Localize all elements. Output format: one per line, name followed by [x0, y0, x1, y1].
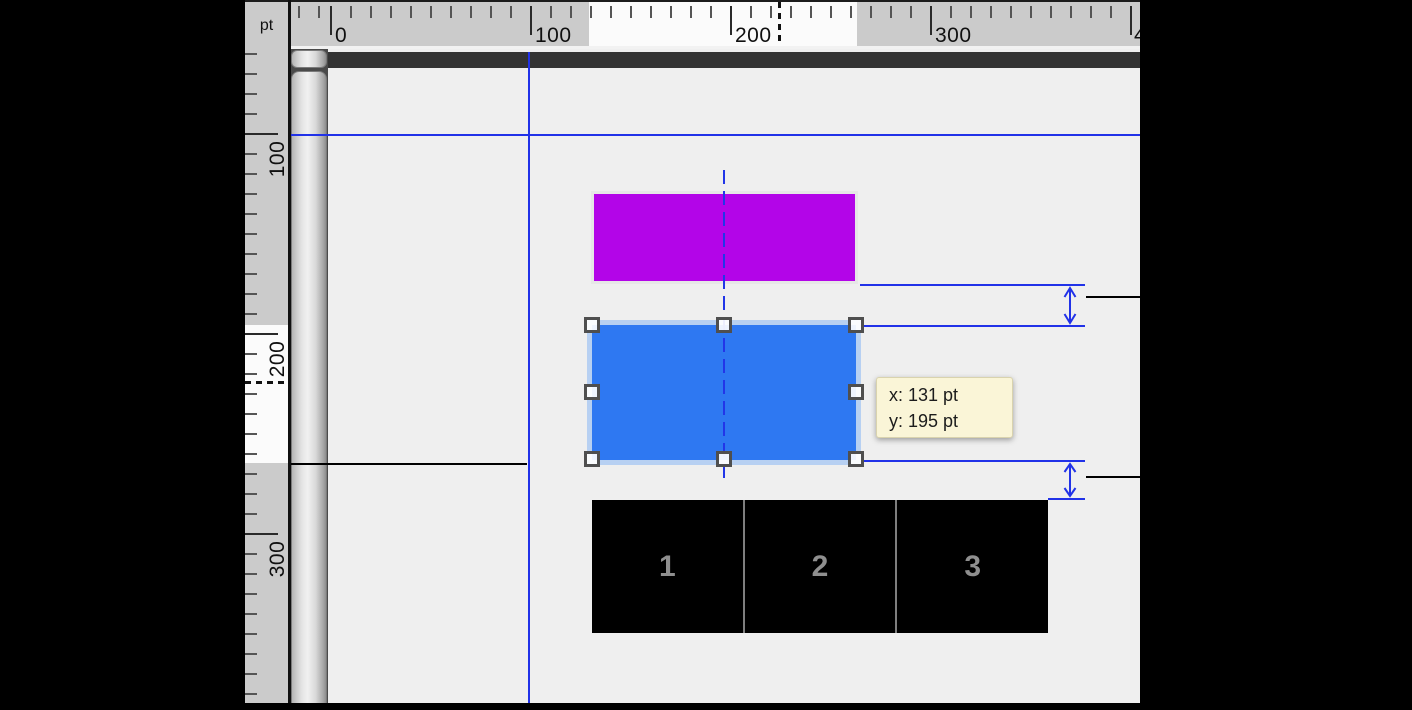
screenshot-stage: pt 0 100 200 300 400 100 200 300: [0, 0, 1412, 710]
ruler-tick-v100: [245, 133, 278, 135]
vertical-distance-arrow-top: [1063, 286, 1077, 325]
measure-line-selection-bottom: [864, 460, 1085, 462]
measure-line-selection-top: [864, 325, 1085, 327]
ruler-tick-200: [730, 6, 732, 35]
handle-bottom-left[interactable]: [584, 451, 600, 467]
scroll-track[interactable]: [291, 49, 328, 703]
vertical-distance-arrow-bottom: [1063, 462, 1077, 498]
handle-bottom-right[interactable]: [848, 451, 864, 467]
numbered-box-row: 1 2 3: [592, 500, 1048, 633]
handle-middle-left[interactable]: [584, 384, 600, 400]
offpage-dark-strip: [328, 52, 1140, 68]
box-label-2: 2: [812, 550, 829, 584]
black-line-right-lower[interactable]: [1086, 476, 1140, 478]
box-label-3: 3: [964, 550, 981, 584]
box-label-1: 1: [659, 550, 676, 584]
vertical-ruler[interactable]: 100 200 300: [245, 49, 288, 703]
horizontal-ruler[interactable]: 0 100 200 300 400: [288, 0, 1140, 49]
ruler-label-300: 300: [935, 24, 972, 48]
numbered-box-3[interactable]: 3: [895, 500, 1048, 633]
measure-line-boxes-top: [1048, 498, 1085, 500]
handle-bottom-center[interactable]: [716, 451, 732, 467]
ruler-tick-v300: [245, 533, 278, 535]
ruler-unit-box[interactable]: pt: [245, 0, 288, 49]
vertical-guide-line[interactable]: [528, 52, 530, 703]
ruler-label-v200: 200: [266, 339, 288, 379]
ruler-label-200: 200: [735, 24, 772, 48]
ruler-tick-100: [530, 6, 532, 35]
numbered-box-2[interactable]: 2: [743, 500, 896, 633]
ruler-label-0: 0: [335, 24, 347, 48]
handle-top-right[interactable]: [848, 317, 864, 333]
ruler-unit-label: pt: [260, 17, 273, 35]
scrollbar-thumb[interactable]: [291, 71, 327, 703]
handle-top-left[interactable]: [584, 317, 600, 333]
measure-line-magenta-bottom: [860, 284, 1085, 286]
handle-middle-right[interactable]: [848, 384, 864, 400]
horizontal-guide-line[interactable]: [291, 134, 1140, 136]
ruler-tick-300: [930, 6, 932, 35]
vertical-ruler-cursor-indicator: [245, 381, 288, 384]
horizontal-ruler-cursor-indicator: [778, 2, 781, 49]
ruler-label-v300: 300: [266, 539, 288, 579]
numbered-box-1[interactable]: 1: [592, 500, 743, 633]
canvas-viewport: pt 0 100 200 300 400 100 200 300: [245, 0, 1140, 703]
handle-top-center[interactable]: [716, 317, 732, 333]
tooltip-y-value: y: 195 pt: [889, 408, 1012, 434]
ruler-tick-0: [330, 6, 332, 35]
ruler-tick-v200: [245, 333, 278, 335]
ruler-label-400: 400: [1134, 24, 1140, 48]
vertical-ruler-minor-ticks: [245, 49, 257, 703]
ruler-label-v100: 100: [266, 139, 288, 179]
ruler-label-100: 100: [535, 24, 572, 48]
horizontal-ruler-minor-ticks: [288, 6, 1140, 18]
coordinate-tooltip: x: 131 pt y: 195 pt: [876, 377, 1013, 438]
ruler-canvas-divider: [288, 0, 291, 703]
ruler-tick-400: [1130, 6, 1132, 35]
black-line-right-upper[interactable]: [1086, 296, 1140, 298]
scroll-cap-button[interactable]: [291, 50, 327, 68]
tooltip-x-value: x: 131 pt: [889, 382, 1012, 408]
